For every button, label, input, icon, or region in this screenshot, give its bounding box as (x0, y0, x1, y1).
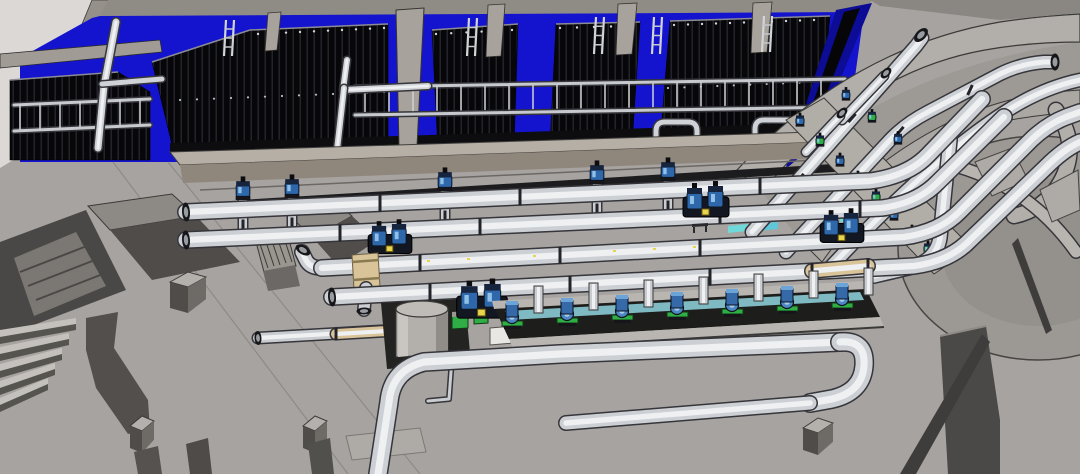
pipe-glint (613, 250, 616, 252)
pipe-glint (693, 246, 696, 248)
wall-stub (186, 438, 212, 474)
wall-stub (308, 438, 334, 474)
pipe-glint (653, 248, 656, 250)
tank-top (396, 301, 448, 317)
flex-coupling-tan (812, 266, 868, 271)
basin-riser-branch (102, 79, 162, 84)
pipe-glint (467, 258, 470, 260)
tank-highlight (398, 310, 408, 357)
pipe-glint (427, 260, 430, 262)
viewport-canvas[interactable] (0, 0, 1080, 474)
pipe-end-flange (1051, 54, 1060, 71)
model-viewport[interactable] (0, 0, 1080, 474)
pipe-glint (533, 255, 536, 257)
